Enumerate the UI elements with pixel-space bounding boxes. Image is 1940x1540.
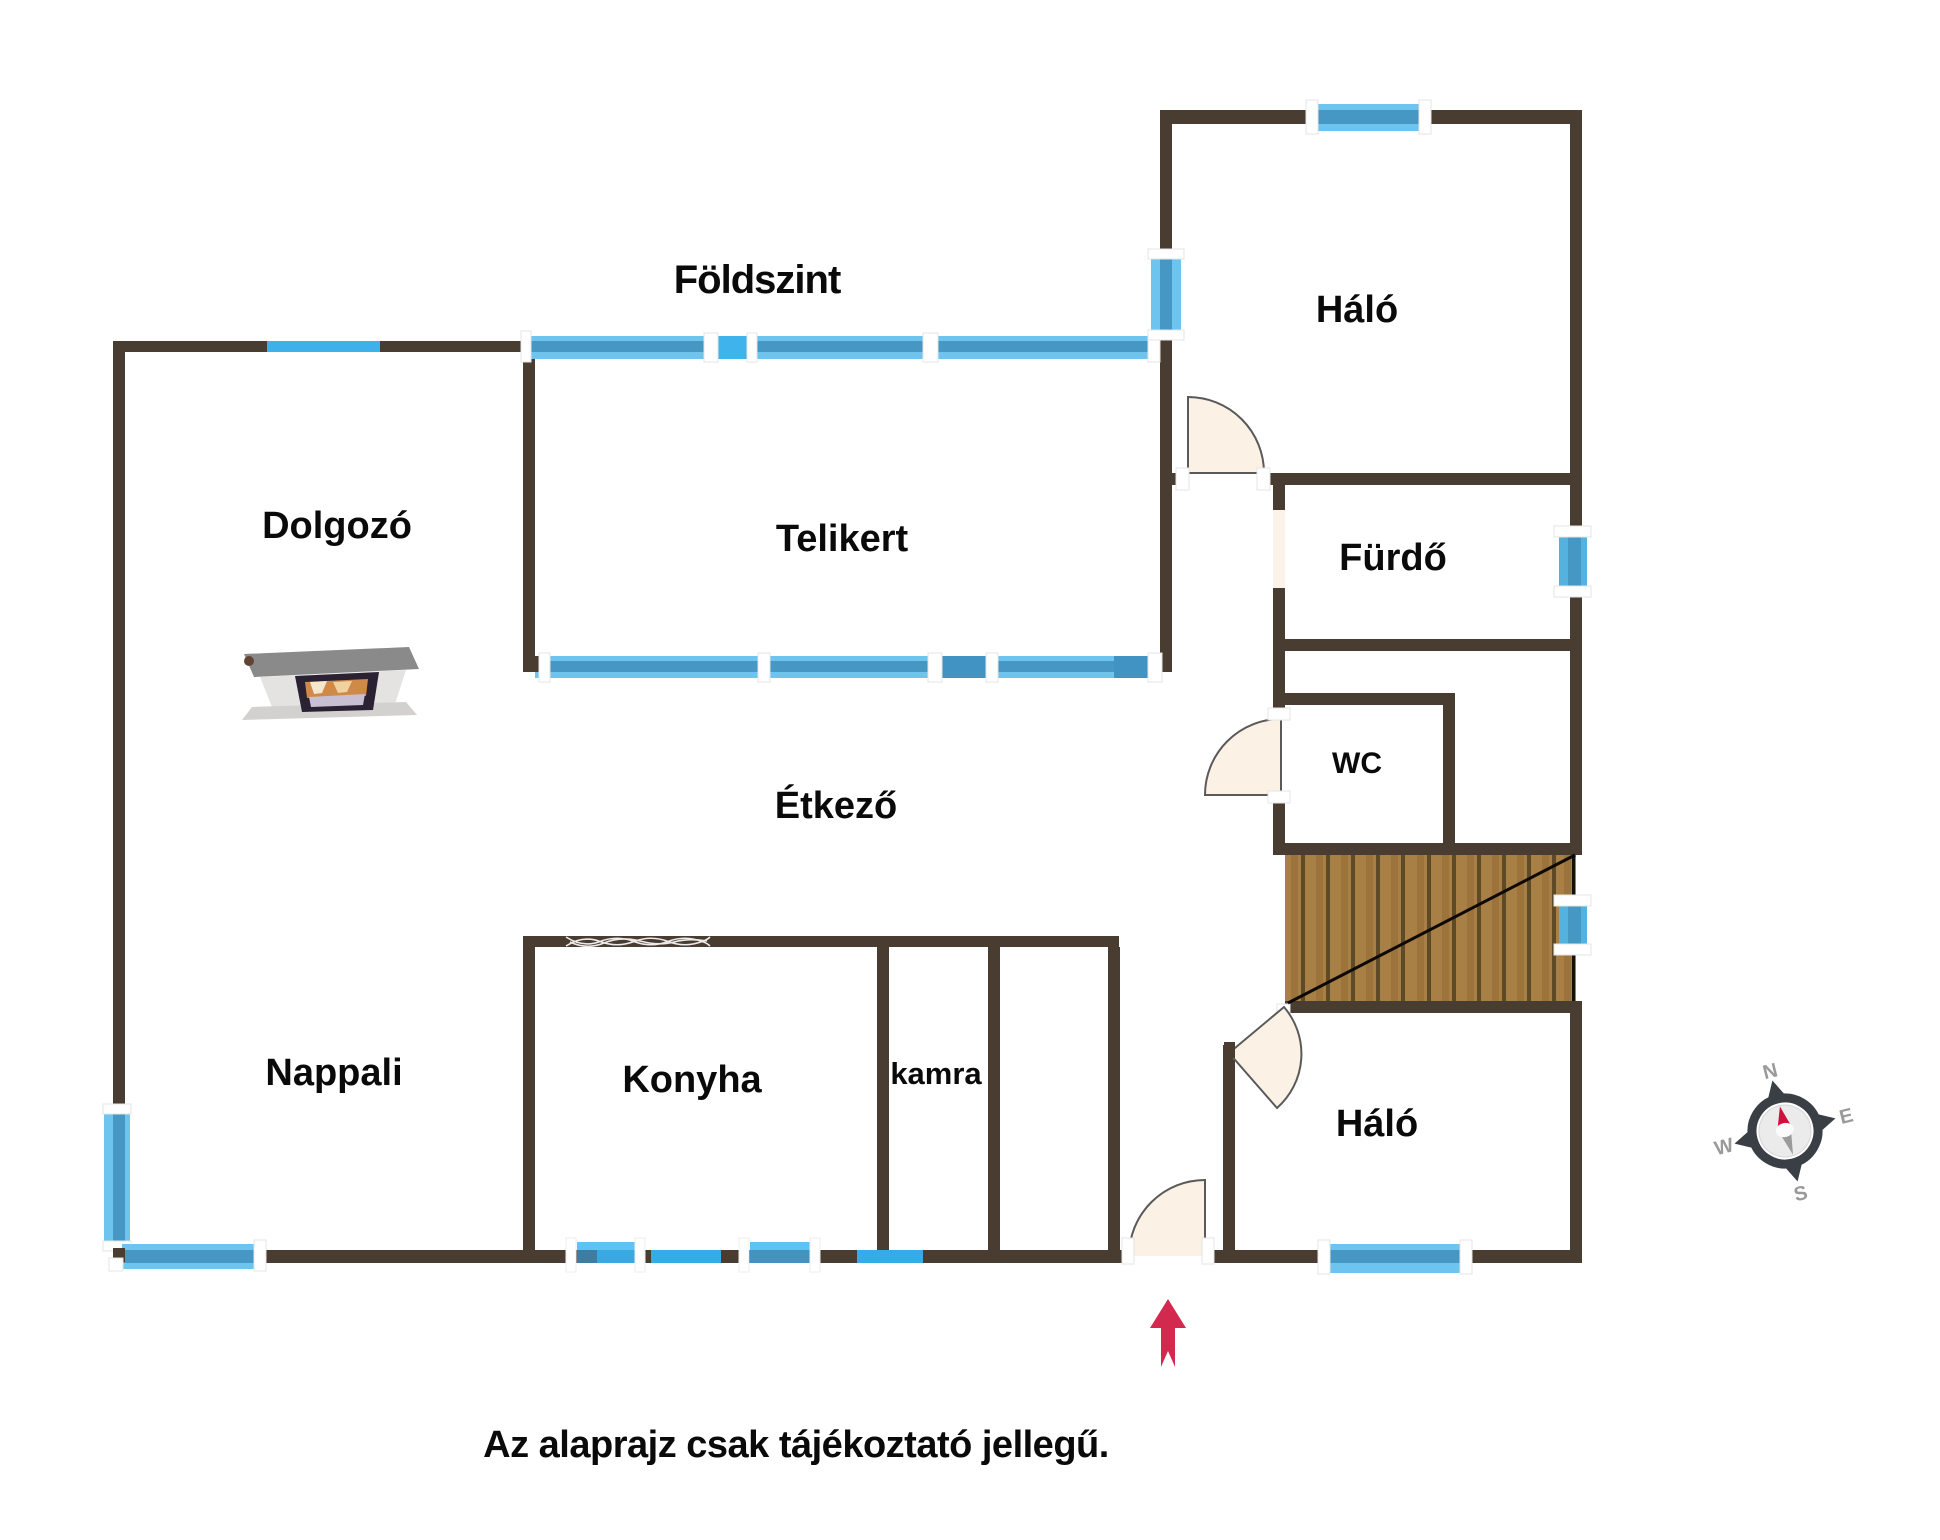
svg-text:Háló: Háló — [1336, 1103, 1418, 1145]
svg-text:Háló: Háló — [1316, 289, 1398, 331]
svg-text:WC: WC — [1332, 747, 1382, 780]
svg-text:kamra: kamra — [890, 1056, 982, 1091]
svg-text:Telikert: Telikert — [776, 518, 909, 560]
svg-text:Fürdő: Fürdő — [1339, 537, 1447, 579]
svg-text:Az alaprajz csak tájékoztató j: Az alaprajz csak tájékoztató jellegű. — [483, 1424, 1109, 1466]
svg-text:Nappali: Nappali — [265, 1052, 402, 1094]
svg-text:Étkező: Étkező — [775, 783, 897, 827]
svg-text:Konyha: Konyha — [622, 1059, 762, 1101]
svg-text:Földszint: Földszint — [674, 258, 841, 302]
svg-text:Dolgozó: Dolgozó — [262, 505, 412, 547]
